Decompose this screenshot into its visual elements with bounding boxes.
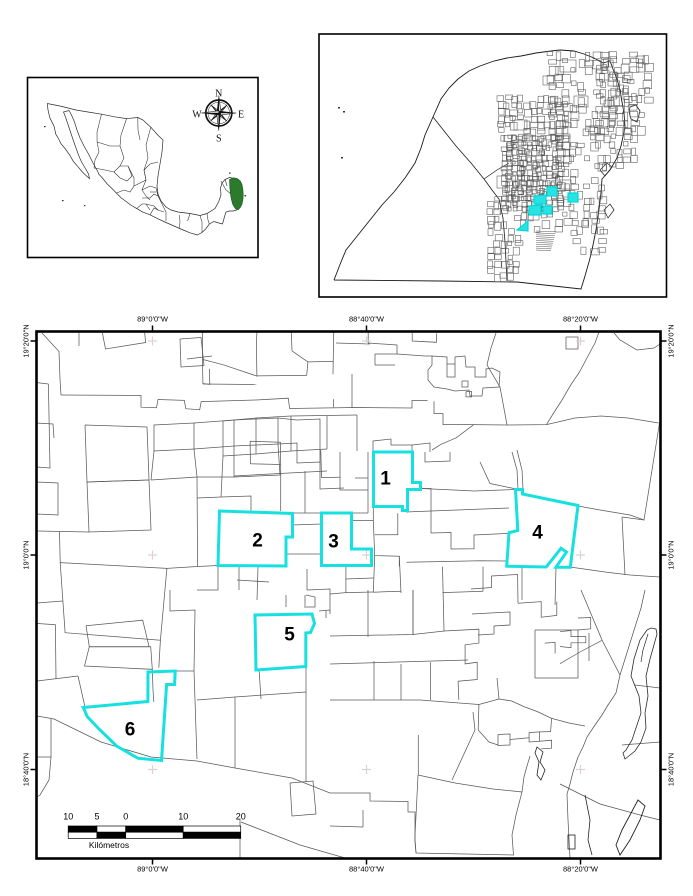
svg-text:10: 10: [63, 812, 73, 822]
svg-text:1: 1: [380, 469, 391, 490]
svg-text:2: 2: [252, 531, 263, 552]
svg-text:88°40'0"W: 88°40'0"W: [349, 315, 385, 324]
svg-text:Kilómetros: Kilómetros: [89, 840, 129, 850]
svg-text:S: S: [216, 134, 222, 145]
svg-text:19°20'0"N: 19°20'0"N: [667, 324, 676, 357]
svg-text:88°20'0"W: 88°20'0"W: [563, 315, 599, 324]
svg-text:20: 20: [236, 812, 246, 822]
svg-text:89°0'0"W: 89°0'0"W: [137, 865, 169, 874]
svg-text:89°0'0"W: 89°0'0"W: [137, 315, 169, 324]
svg-text:5: 5: [94, 812, 99, 822]
svg-text:88°20'0"W: 88°20'0"W: [563, 865, 599, 874]
svg-text:4: 4: [532, 523, 543, 544]
svg-text:18°40'0"N: 18°40'0"N: [22, 753, 31, 786]
svg-text:W: W: [192, 110, 202, 121]
svg-text:N: N: [215, 89, 222, 100]
svg-text:19°0'0"N: 19°0'0"N: [22, 540, 31, 569]
svg-text:18°40'0"N: 18°40'0"N: [667, 753, 676, 786]
svg-text:19°0'0"N: 19°0'0"N: [667, 540, 676, 569]
svg-text:19°20'0"N: 19°20'0"N: [22, 324, 31, 357]
svg-text:10: 10: [178, 812, 188, 822]
svg-text:88°40'0"W: 88°40'0"W: [349, 865, 385, 874]
svg-text:6: 6: [125, 720, 136, 741]
svg-text:0: 0: [123, 812, 128, 822]
svg-text:3: 3: [328, 532, 339, 553]
svg-text:E: E: [238, 110, 244, 121]
svg-text:5: 5: [284, 625, 295, 646]
